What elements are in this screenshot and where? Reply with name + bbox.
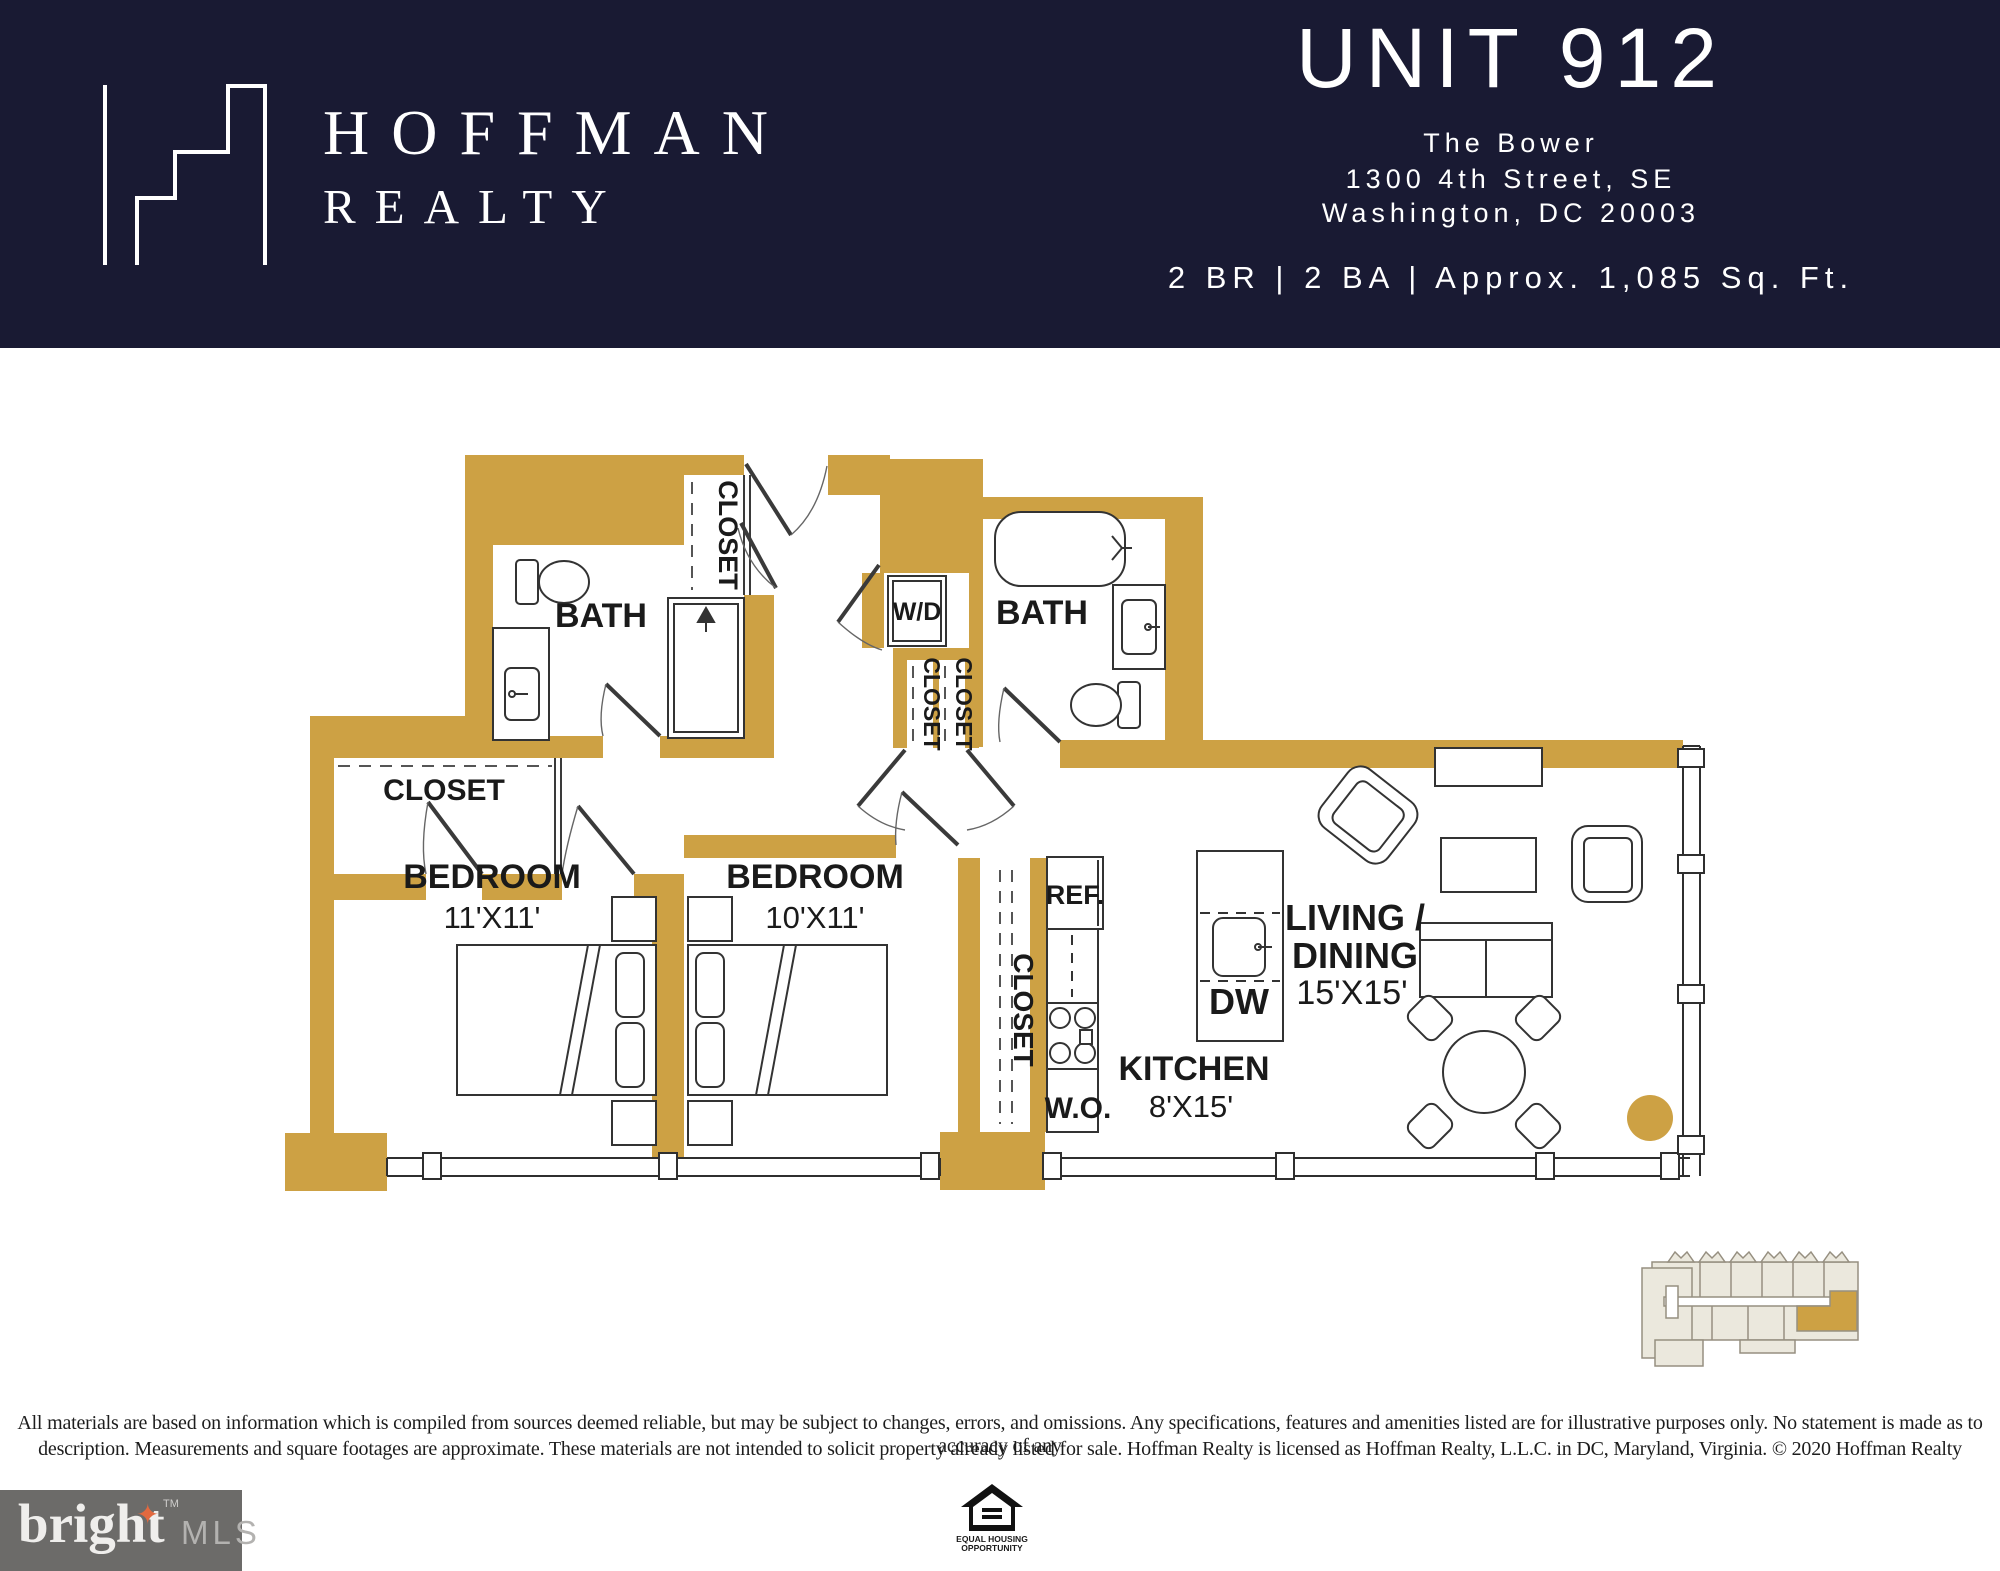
label-bath-2: BATH bbox=[996, 594, 1088, 632]
equal-housing-icon: EQUAL HOUSING OPPORTUNITY bbox=[956, 1484, 1028, 1553]
bright-mls-text: MLS bbox=[181, 1514, 261, 1552]
nightstand bbox=[612, 1101, 656, 1145]
floor-plan: BATH CLOSET W/D BATH CLOSET CLOSET CLOSE… bbox=[0, 0, 2000, 1571]
label-wd: W/D bbox=[893, 598, 942, 626]
disclaimer-line-2: description. Measurements and square foo… bbox=[0, 1438, 2000, 1461]
nightstand bbox=[612, 897, 656, 941]
label-ref: REF. bbox=[1046, 880, 1105, 910]
bright-star-icon: ✦ bbox=[136, 1498, 159, 1531]
nightstand bbox=[688, 1101, 732, 1145]
bright-tm: TM bbox=[163, 1498, 179, 1510]
flyer-page: HOFFMAN REALTY UNIT 912 The Bower 1300 4… bbox=[0, 0, 2000, 1571]
vanity-2-icon bbox=[1113, 585, 1165, 669]
console-table bbox=[1435, 748, 1542, 786]
label-living-1: LIVING / bbox=[1285, 897, 1425, 938]
label-living-2: DINING bbox=[1292, 935, 1418, 976]
tub-icon bbox=[995, 512, 1132, 586]
label-kitchen-dims: 8'X15' bbox=[1149, 1089, 1233, 1124]
label-closet-walkin: CLOSET bbox=[383, 774, 505, 807]
column bbox=[1627, 1095, 1673, 1141]
vanity-1-icon bbox=[493, 628, 549, 740]
dining-table bbox=[1443, 1031, 1525, 1113]
accent-chair bbox=[1572, 826, 1642, 902]
toilet-2-icon bbox=[1071, 682, 1140, 728]
label-closet-mid-2: CLOSET bbox=[951, 657, 977, 750]
label-bedroom-2-dims: 10'X11' bbox=[765, 900, 864, 935]
label-dw: DW bbox=[1209, 981, 1269, 1022]
label-closet-hall: CLOSET bbox=[1008, 953, 1039, 1067]
window-band-right bbox=[1678, 746, 1704, 1176]
label-bedroom-1-dims: 11'X11' bbox=[444, 900, 541, 935]
counter-icon bbox=[1047, 929, 1098, 1003]
site-plan bbox=[1642, 1252, 1858, 1366]
label-kitchen: KITCHEN bbox=[1118, 1050, 1269, 1088]
label-living-dims: 15'X15' bbox=[1296, 974, 1407, 1012]
equal-housing-text-2: OPPORTUNITY bbox=[961, 1543, 1023, 1553]
label-bath-1: BATH bbox=[555, 597, 647, 635]
label-bedroom-2: BEDROOM bbox=[726, 858, 904, 896]
label-wo: W.O. bbox=[1045, 1092, 1112, 1125]
bright-mls-logo: bright ✦ TM MLS bbox=[0, 1490, 242, 1571]
label-bedroom-1: BEDROOM bbox=[403, 858, 581, 896]
label-closet-mid-1: CLOSET bbox=[919, 657, 945, 750]
shower-1-icon bbox=[668, 598, 744, 738]
sofa bbox=[1420, 923, 1552, 997]
nightstand bbox=[688, 897, 732, 941]
label-closet-entry: CLOSET bbox=[713, 480, 743, 590]
stove-icon bbox=[1047, 1003, 1098, 1069]
armchair-angled bbox=[1312, 760, 1424, 870]
dining-set bbox=[1405, 993, 1564, 1152]
coffee-table bbox=[1441, 838, 1536, 892]
